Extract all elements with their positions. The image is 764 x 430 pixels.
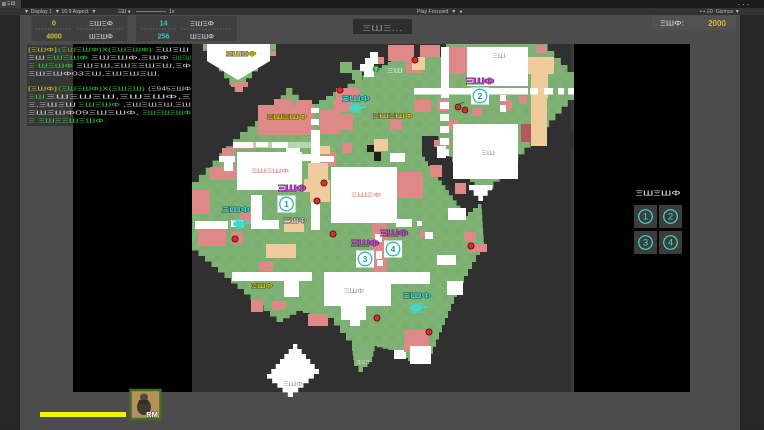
- svg-text:ΞШ: ΞШ: [28, 95, 45, 101]
- svg-text:1: 1: [643, 212, 648, 223]
- svg-text:ΞШ: ΞШ: [28, 56, 45, 62]
- svg-text:1: 1: [284, 199, 289, 209]
- svg-text:ΞШΞΦ: ΞШΞΦ: [190, 21, 214, 28]
- svg-text:3: 3: [363, 254, 368, 264]
- svg-text:ШΞШΦ: ШΞШΦ: [190, 34, 214, 41]
- svg-text:ΞШΞШΦ: ΞШΞШΦ: [251, 168, 289, 175]
- svg-text:ΞШΞШΦ: ΞШΞШΦ: [267, 114, 307, 121]
- svg-text:ΞШΞШΦ: ΞШΞШΦ: [636, 189, 681, 198]
- svg-text:4000: 4000: [46, 34, 62, 41]
- svg-text:2000: 2000: [708, 19, 726, 28]
- svg-text:ΞШΞШ: ΞШΞШ: [172, 56, 191, 62]
- svg-text:ШΞШΦ: ШΞШΦ: [89, 34, 113, 41]
- svg-text:3Ξ3: 3Ξ3: [357, 360, 370, 366]
- svg-text:ΞШΞΦ: ΞШΞΦ: [89, 21, 113, 28]
- svg-text:ΞШΦ: ΞШΦ: [403, 291, 431, 300]
- svg-text:ΞШΦ: ΞШΦ: [283, 382, 303, 388]
- svg-text:Ξ: Ξ: [362, 67, 366, 74]
- svg-text:2: 2: [668, 212, 673, 223]
- svg-text:ΞШΞШ: ΞШΞШ: [155, 48, 189, 54]
- svg-text:ΞШΞШΦ03ΞШ,ΞШΞШΞШ.: ΞШΞШΦ03ΞШ,ΞШΞШΞШ.: [28, 72, 161, 78]
- svg-text:ΞШ: ΞШ: [493, 54, 506, 60]
- svg-text:ΞШΞΦ: ΞШΞΦ: [226, 51, 256, 58]
- svg-text:ΞШΞШΞШ,ΞШΞШΦ,Ξ: ΞШΞШΞШ,ΞШΞШΦ,Ξ: [46, 95, 192, 101]
- svg-text:ΞШΞ...: ΞШΞ...: [363, 24, 403, 33]
- svg-text:ΞШΞШΦ: ΞШΞШΦ: [46, 56, 89, 62]
- svg-text:ΞШ: ΞШ: [481, 150, 495, 157]
- svg-text:4: 4: [668, 238, 673, 249]
- svg-text:4: 4: [391, 244, 396, 254]
- svg-text:ΞШΞШΦ: ΞШΞШΦ: [373, 113, 413, 120]
- svg-text:Ξ,ΞШΞШ: Ξ,ΞШΞШ: [28, 103, 76, 109]
- svg-text:ΞШΞΦ: ΞШΞΦ: [351, 192, 381, 199]
- svg-text:ΞШΞШΞШΦ: ΞШΞШΞШΦ: [142, 111, 192, 117]
- svg-text:ΞШΦ: ΞШΦ: [252, 284, 273, 290]
- svg-text:ΞШΞШΦ,ΞШΦ: ΞШΞШΦ,ΞШΦ: [91, 56, 170, 62]
- svg-text:ΞШΦ: ΞШΦ: [466, 77, 494, 86]
- svg-text:[ΞШΦ]: [ΞШΦ]: [28, 48, 58, 54]
- svg-text:ΞШΦ: ΞШΦ: [284, 218, 308, 225]
- svg-text:(Ξ945ΞШΦ: (Ξ945ΞШΦ: [148, 87, 192, 93]
- svg-text:256: 256: [158, 34, 170, 41]
- svg-text:ΞШΞШΦ09ΞШΞШΦ,: ΞШΞШΦ09ΞШΞШΦ,: [28, 111, 140, 117]
- svg-text:Ξ ΞШΞΞШΞШΦ.: Ξ ΞШΞΞШΞШΦ.: [28, 119, 108, 125]
- svg-text:Ξ ШΞШΦ: Ξ ШΞШΦ: [28, 64, 74, 70]
- svg-text:RM: RM: [146, 410, 158, 419]
- svg-text:[ΞШΦ]: [ΞШΦ]: [28, 87, 58, 93]
- svg-text:ΞШΦ: ΞШΦ: [351, 239, 379, 248]
- svg-text:,ΞШΞШΞШ,ΞШ: ,ΞШΞШΞШ,ΞШ: [123, 103, 191, 109]
- svg-text:ΞШΞШ,ΞШΞΞШΞШ,ΞΦ: ΞШΞШ,ΞШΞΞШΞШ,ΞΦ: [76, 64, 192, 70]
- svg-text:ΞШΦ:: ΞШΦ:: [660, 21, 684, 28]
- svg-text:ΞШΦ: ΞШΦ: [222, 205, 250, 214]
- svg-text:2: 2: [478, 91, 483, 101]
- svg-text:T: T: [374, 67, 377, 73]
- svg-text:(ΞШΞШΦ)X(ΞШΞШ): (ΞШΞШΦ)X(ΞШΞШ): [58, 87, 145, 93]
- svg-text:ΞШ: ΞШ: [387, 68, 403, 75]
- svg-text:0: 0: [52, 21, 56, 28]
- svg-text:3: 3: [643, 238, 648, 249]
- svg-text:(ΞШΞШΦ)X(ΞШΞШΦ): (ΞШΞШΦ)X(ΞШΞШΦ): [58, 48, 152, 54]
- svg-text:ΞШΞШΦ: ΞШΞШΦ: [78, 103, 121, 109]
- svg-text:ΞШΦ: ΞШΦ: [278, 184, 306, 193]
- svg-text:14: 14: [160, 21, 168, 28]
- svg-text:ΞШΦ: ΞШΦ: [342, 94, 370, 103]
- svg-text:ΞШΦ: ΞШΦ: [380, 229, 408, 238]
- svg-text:ΞШΦ: ΞШΦ: [344, 289, 364, 295]
